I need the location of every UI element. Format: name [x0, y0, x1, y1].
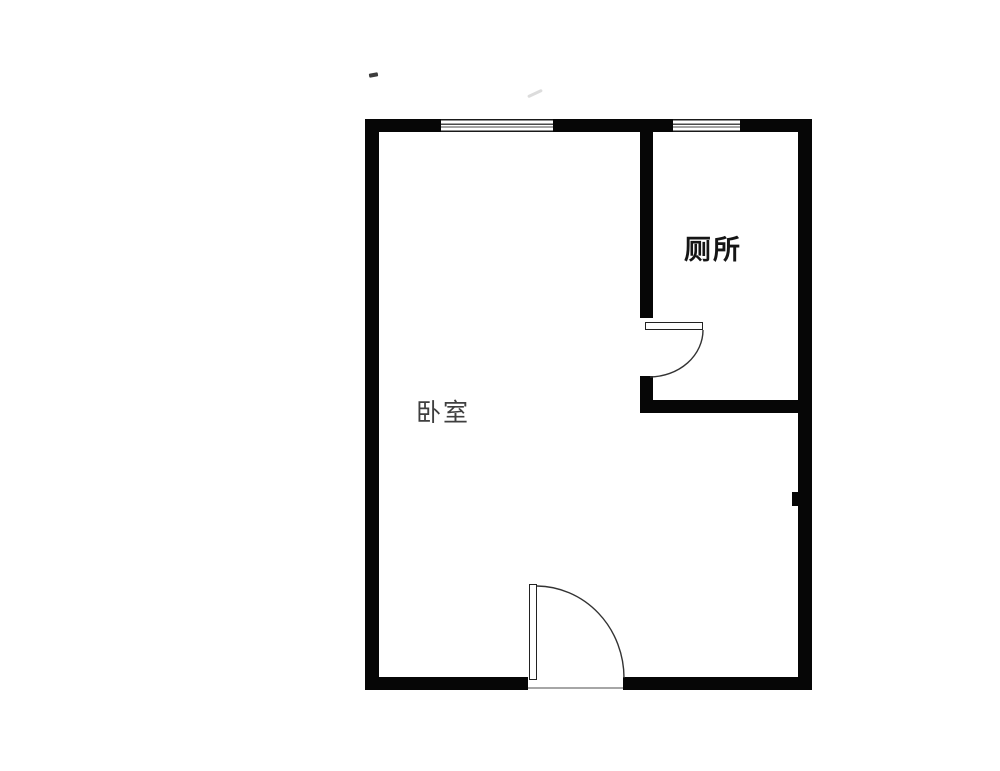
- wall-top: [365, 119, 812, 132]
- wall-bottom-left-segment: [365, 677, 528, 690]
- artifact-smudge: [527, 89, 543, 98]
- toilet-door-leaf: [645, 322, 703, 330]
- bedroom-label: 卧室: [416, 401, 470, 426]
- toilet-door-arc: [650, 330, 703, 377]
- wall-bottom-right-segment: [623, 677, 812, 690]
- wall-left: [365, 119, 379, 690]
- bedroom-door-arc: [537, 586, 624, 678]
- interior-wall-vertical-upper: [640, 132, 653, 318]
- entry-door-threshold: [528, 687, 623, 689]
- door-arcs-layer: [0, 0, 1000, 771]
- window-top-left: [441, 119, 553, 132]
- wall-right: [798, 119, 812, 690]
- wall-nub: [792, 492, 799, 506]
- artifact-dash: [369, 72, 379, 78]
- floorplan-canvas: 厕所 卧室: [0, 0, 1000, 771]
- interior-wall-horizontal: [646, 400, 798, 413]
- window-top-right: [673, 119, 740, 132]
- toilet-label: 厕所: [684, 237, 742, 264]
- bedroom-door-leaf: [529, 584, 537, 680]
